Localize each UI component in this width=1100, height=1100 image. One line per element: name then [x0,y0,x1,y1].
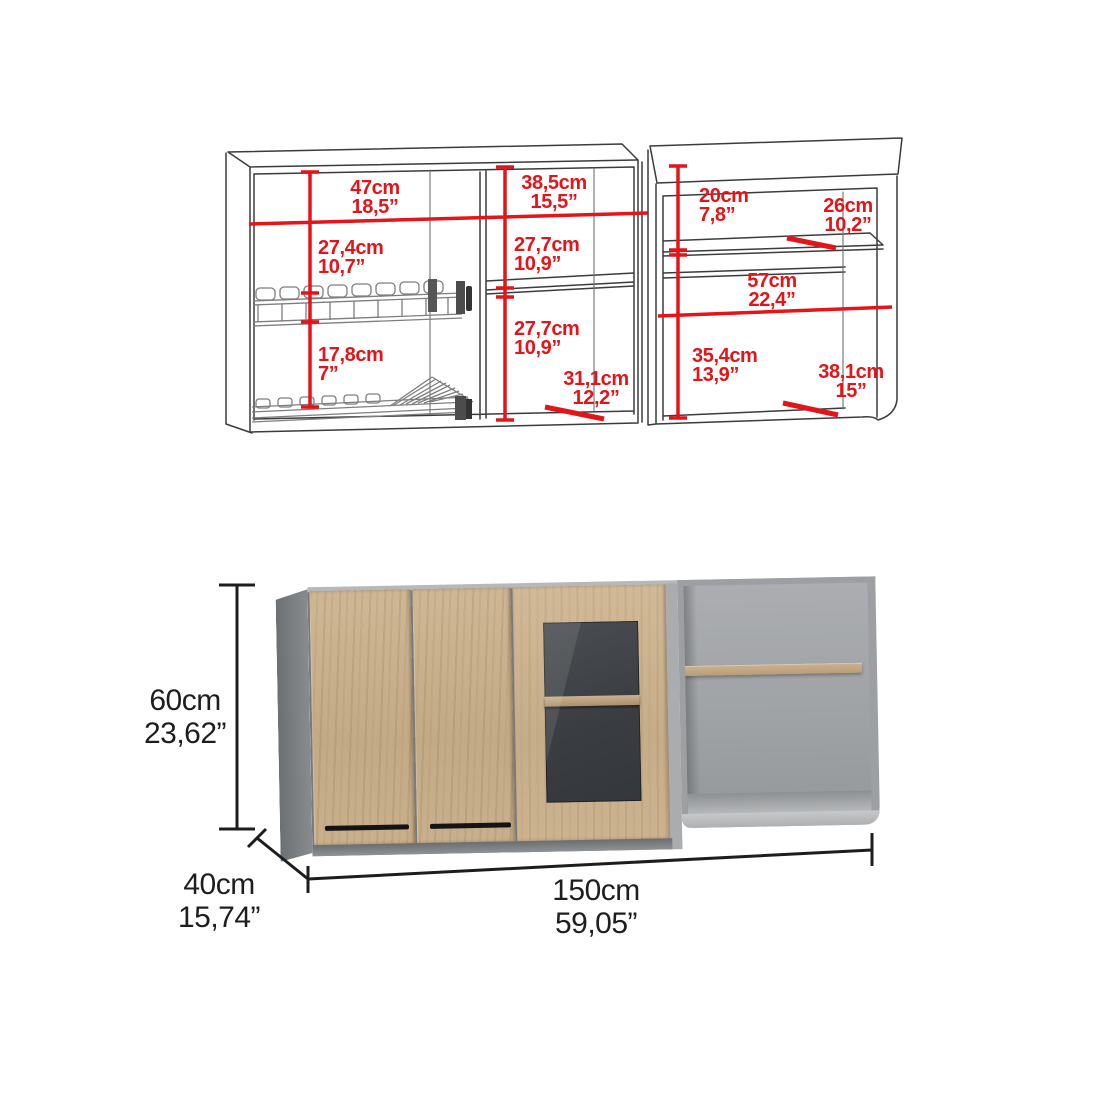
product-width-label: 150cm 59,05” [552,874,640,940]
product-dimension-lines [0,0,1100,1100]
product-height-label: 60cm 23,62” [144,684,226,750]
product-dimension-sheet: 47cm 18,5” 27,4cm 10,7” 17,8cm 7” 38,5cm… [0,0,1100,1100]
product-depth-label: 40cm 15,74” [178,868,260,934]
